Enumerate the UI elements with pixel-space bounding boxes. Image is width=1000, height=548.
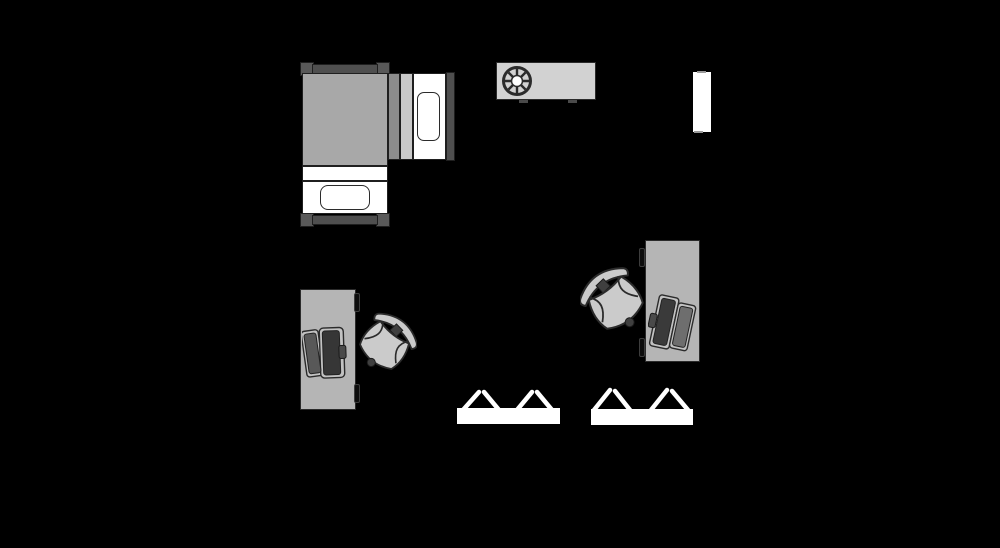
laptop-left[interactable] xyxy=(302,326,348,380)
side-cot-strip-light xyxy=(400,73,413,160)
office-chair-left[interactable] xyxy=(359,307,417,375)
door-hinge-bottom xyxy=(694,131,703,133)
bed-mattress xyxy=(302,73,388,166)
sideboard-foot-left xyxy=(519,100,528,103)
office-chair-right[interactable] xyxy=(580,262,644,334)
bed-sheet-fold-line xyxy=(303,180,387,182)
desk-right-clamp-bottom xyxy=(639,338,645,357)
sideboard[interactable] xyxy=(496,62,596,100)
bed-post-bottom-right xyxy=(376,213,390,227)
bed-footboard-rail xyxy=(312,215,378,225)
laptop-right[interactable] xyxy=(648,292,700,356)
trestle-table-1[interactable] xyxy=(455,385,565,427)
side-cot-sheet xyxy=(413,73,446,160)
door-panel[interactable] xyxy=(693,72,711,132)
trestle-table-2[interactable] xyxy=(589,386,699,428)
bed[interactable] xyxy=(300,62,456,227)
floor-plan-canvas xyxy=(0,0,1000,548)
bed-sheet xyxy=(302,166,388,214)
desk-left-clamp-bottom xyxy=(354,384,360,403)
side-cot-end-rail xyxy=(446,72,455,161)
bed-pillow xyxy=(320,185,370,210)
side-cot-pillow xyxy=(417,92,440,141)
fan-wheel-icon xyxy=(500,64,534,98)
sideboard-foot-right xyxy=(568,100,577,103)
door-hinge-top xyxy=(697,71,706,73)
side-cot-strip-dark xyxy=(388,73,400,160)
